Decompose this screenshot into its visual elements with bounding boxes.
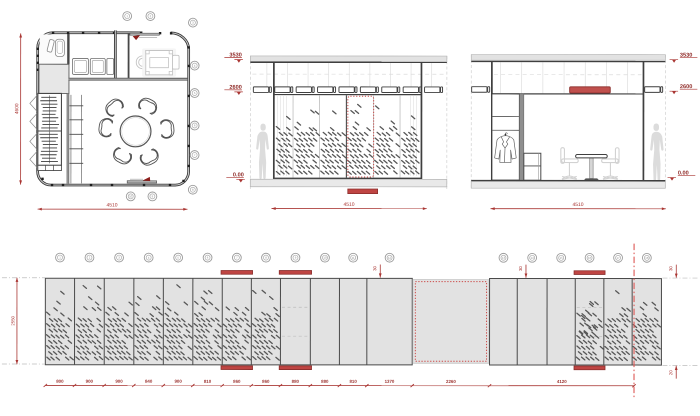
svg-text:2550: 2550 (10, 315, 15, 325)
svg-text:4510: 4510 (106, 202, 117, 208)
svg-text:10: 10 (323, 256, 327, 260)
svg-text:2260: 2260 (446, 379, 456, 384)
svg-text:4510: 4510 (572, 202, 583, 208)
svg-text:18: 18 (645, 256, 649, 260)
svg-text:30: 30 (372, 266, 377, 271)
svg-text:4510: 4510 (343, 202, 354, 208)
svg-text:900: 900 (115, 379, 123, 384)
svg-text:800: 800 (56, 379, 64, 384)
svg-text:15: 15 (560, 256, 564, 260)
svg-text:30: 30 (518, 266, 523, 271)
svg-text:840: 840 (145, 379, 153, 384)
svg-text:13: 13 (502, 256, 506, 260)
svg-text:1370: 1370 (385, 379, 395, 384)
svg-text:810: 810 (204, 379, 212, 384)
svg-text:860: 860 (233, 379, 241, 384)
svg-text:30: 30 (668, 266, 673, 271)
svg-text:12: 12 (388, 256, 392, 260)
svg-text:810: 810 (349, 379, 357, 384)
svg-text:900: 900 (86, 379, 94, 384)
svg-text:860: 860 (262, 379, 270, 384)
svg-text:4120: 4120 (557, 379, 567, 384)
svg-text:880: 880 (321, 379, 329, 384)
svg-text:14: 14 (531, 256, 535, 260)
svg-text:900: 900 (174, 379, 182, 384)
svg-text:880: 880 (292, 379, 300, 384)
svg-text:16: 16 (588, 256, 592, 260)
svg-text:20: 20 (668, 370, 673, 375)
svg-text:4600: 4600 (14, 103, 20, 114)
svg-text:10: 10 (129, 194, 133, 198)
svg-text:17: 17 (617, 256, 621, 260)
svg-text:11: 11 (352, 256, 355, 260)
